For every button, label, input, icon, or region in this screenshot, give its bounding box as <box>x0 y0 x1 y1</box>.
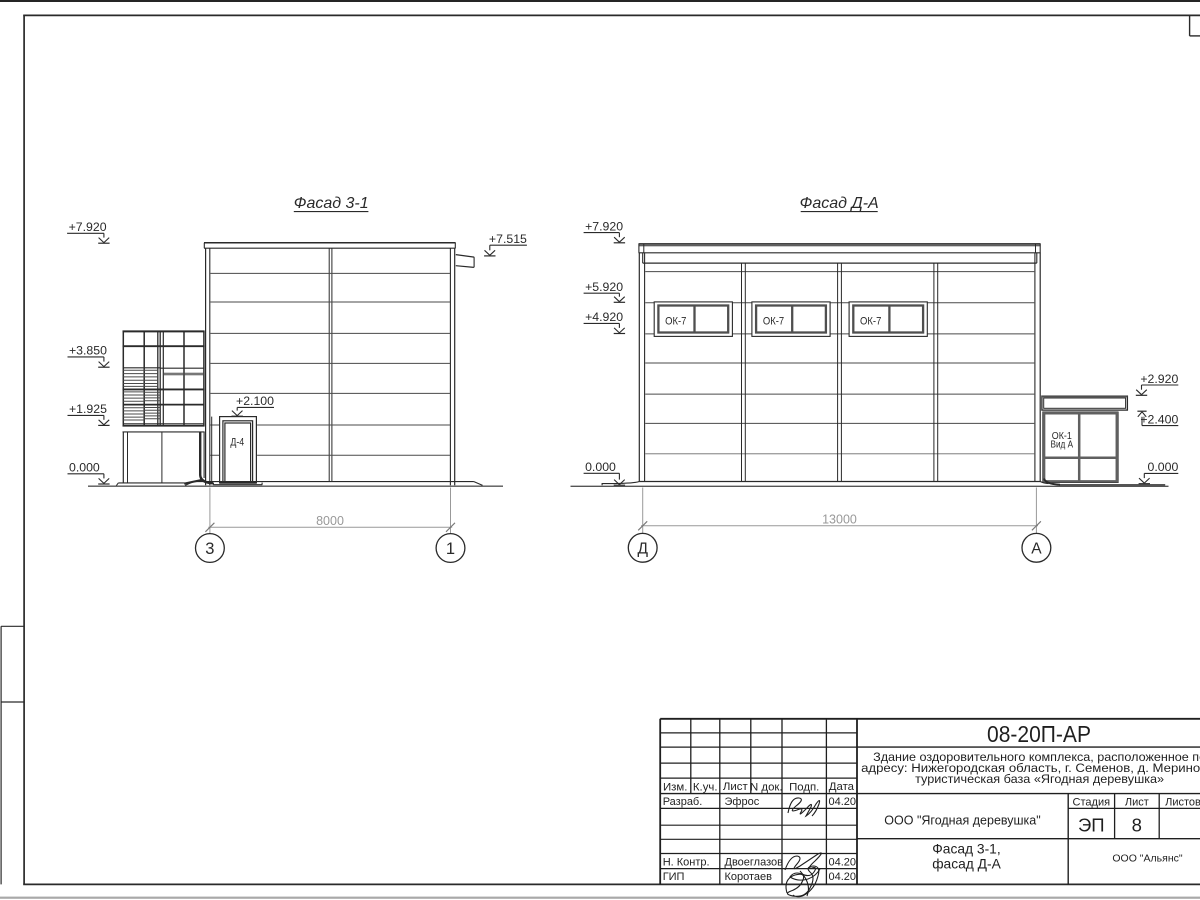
svg-text:туристическая база «Ягодная де: туристическая база «Ягодная деревушка» <box>915 772 1164 786</box>
svg-text:Фасад Д-А: Фасад Д-А <box>800 195 879 212</box>
svg-text:08-20П-АР: 08-20П-АР <box>987 721 1091 747</box>
svg-text:ООО "Альянс": ООО "Альянс" <box>1112 853 1182 865</box>
svg-text:Эфрос: Эфрос <box>725 796 760 808</box>
svg-text:04.20: 04.20 <box>829 871 857 883</box>
svg-text:Дата: Дата <box>829 781 855 793</box>
svg-text:ООО "Ягодная деревушка": ООО "Ягодная деревушка" <box>884 814 1040 828</box>
svg-text:0.000: 0.000 <box>1148 460 1179 474</box>
svg-text:А: А <box>1031 541 1042 558</box>
svg-text:8: 8 <box>1132 814 1142 835</box>
svg-text:+7.515: +7.515 <box>489 232 527 246</box>
svg-text:04.20: 04.20 <box>829 796 857 808</box>
svg-text:3: 3 <box>205 540 214 558</box>
svg-text:ЭП: ЭП <box>1078 814 1105 835</box>
svg-text:+2.920: +2.920 <box>1140 372 1178 386</box>
svg-text:+7.920: +7.920 <box>69 220 107 234</box>
svg-text:Вид А: Вид А <box>1051 440 1074 451</box>
svg-text:ГИП: ГИП <box>663 871 685 883</box>
svg-text:+1.925: +1.925 <box>69 402 107 416</box>
svg-text:Д-4: Д-4 <box>230 436 244 448</box>
svg-text:Д: Д <box>637 541 648 558</box>
svg-text:04.20: 04.20 <box>829 857 857 869</box>
svg-text:фасад Д-А: фасад Д-А <box>932 857 1001 872</box>
svg-text:+2.400: +2.400 <box>1140 412 1178 426</box>
svg-text:Коротаев: Коротаев <box>725 871 773 883</box>
svg-text:8000: 8000 <box>316 514 344 528</box>
svg-text:Листов: Листов <box>1165 796 1200 808</box>
svg-text:+5.920: +5.920 <box>585 280 623 294</box>
svg-text:+3.850: +3.850 <box>69 344 107 358</box>
svg-text:К.уч.: К.уч. <box>693 781 718 793</box>
svg-text:Н. Контр.: Н. Контр. <box>663 857 710 869</box>
svg-text:+2.100: +2.100 <box>236 394 274 408</box>
svg-text:Стадия: Стадия <box>1073 796 1111 808</box>
svg-text:+7.920: +7.920 <box>585 219 623 233</box>
svg-text:Лист: Лист <box>723 781 749 793</box>
svg-text:Подп.: Подп. <box>789 781 819 793</box>
svg-text:Разраб.: Разраб. <box>663 796 703 808</box>
svg-text:13000: 13000 <box>822 513 857 527</box>
svg-text:ОК-7: ОК-7 <box>665 316 686 328</box>
svg-text:Фасад 3-1: Фасад 3-1 <box>294 195 369 212</box>
svg-text:N док.: N док. <box>750 781 783 793</box>
svg-text:+4.920: +4.920 <box>585 310 623 324</box>
svg-text:ОК-7: ОК-7 <box>763 316 784 328</box>
svg-text:Изм.: Изм. <box>663 781 687 793</box>
svg-text:1: 1 <box>446 540 455 558</box>
svg-text:Фасад 3-1,: Фасад 3-1, <box>932 841 1000 856</box>
svg-text:0.000: 0.000 <box>69 461 100 475</box>
svg-text:Двоеглазов: Двоеглазов <box>725 857 784 869</box>
svg-text:ОК-7: ОК-7 <box>860 316 881 328</box>
svg-text:0.000: 0.000 <box>585 460 616 474</box>
svg-text:Лист: Лист <box>1125 796 1149 808</box>
